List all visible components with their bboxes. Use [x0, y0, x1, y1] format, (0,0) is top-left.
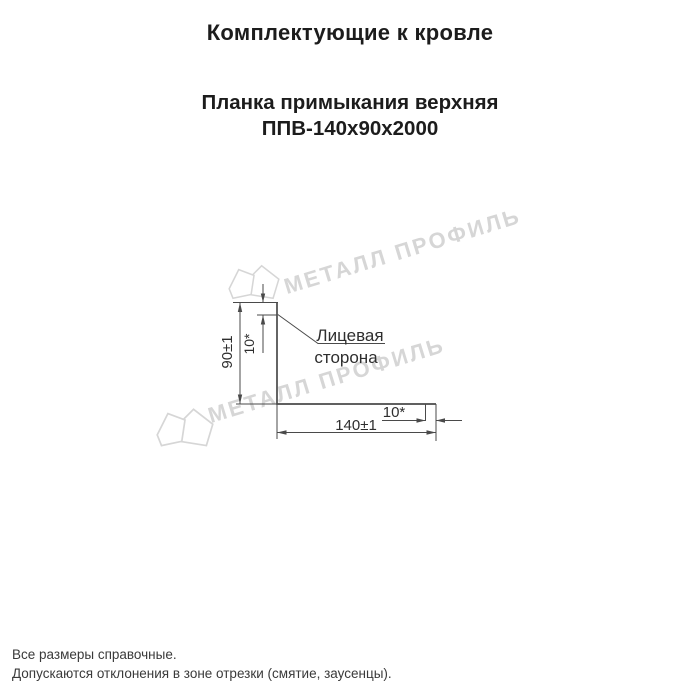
height-dim-label: 90±1 — [219, 335, 236, 368]
arrowhead-right-icon — [417, 418, 426, 422]
arrowhead-left-icon — [277, 430, 287, 434]
width-dim-label: 140±1 — [335, 417, 377, 434]
arrowhead-up-icon — [261, 315, 265, 325]
arrowhead-down-icon — [261, 294, 265, 303]
face-side-label-line1: Лицевая — [316, 326, 383, 345]
face-side-label-line2: сторона — [314, 348, 378, 367]
catalog-page: { "header": { "title": "Комплектующие к … — [0, 0, 700, 700]
arrowhead-right-icon — [427, 430, 437, 434]
top-hem-dim-label: 10* — [241, 333, 257, 355]
profile-drawing: 90±1 10* Лицевая сторона 10* 140±1 — [0, 0, 700, 700]
arrowhead-left-icon — [436, 418, 445, 422]
arrowhead-up-icon — [238, 303, 242, 313]
arrowhead-down-icon — [238, 395, 242, 405]
right-hem-dim-label: 10* — [383, 404, 406, 421]
